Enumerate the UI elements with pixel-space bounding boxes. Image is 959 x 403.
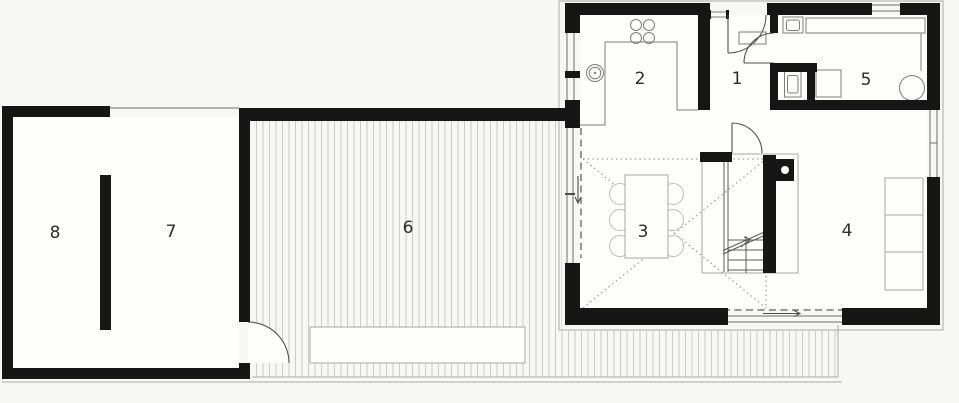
house-south-wall	[565, 308, 728, 325]
room-label-7: 7	[166, 222, 177, 242]
dining-furniture	[610, 175, 684, 258]
sofa-seat	[885, 178, 923, 215]
room-label-8: 8	[50, 223, 61, 243]
house-east-wall	[927, 3, 940, 110]
sofa-seat	[885, 252, 923, 290]
room-label-4: 4	[842, 221, 853, 241]
garage-east-wall	[239, 108, 250, 322]
floor-plan-drawing: 1 2 3 4 5 6 7 8	[0, 0, 959, 403]
dining-table	[625, 175, 668, 258]
fireplace-flue-icon	[781, 166, 789, 174]
room-label-6: 6	[403, 218, 414, 238]
garage-floor	[13, 117, 239, 368]
room-label-1: 1	[732, 69, 743, 89]
house-north-wall	[767, 3, 872, 15]
house-north-wall	[565, 3, 710, 15]
kitchen-hall-wall	[698, 3, 710, 110]
garage-west-wall	[2, 106, 13, 379]
garage-partition-wall	[100, 175, 111, 330]
garage-east-wall	[239, 363, 250, 379]
deck-north-wall	[250, 108, 565, 121]
room-label-5: 5	[861, 70, 872, 90]
stair-top-wall	[702, 154, 728, 160]
bathroom-south-wall	[770, 100, 934, 110]
window-mullion	[565, 71, 580, 78]
house-floor	[580, 15, 927, 308]
floor-plan-canvas: 1 2 3 4 5 6 7 8	[0, 0, 959, 403]
room-label-3: 3	[638, 222, 649, 242]
sink-drain-dot	[594, 72, 596, 74]
stair-side-wall	[763, 155, 776, 273]
sofa-seat	[885, 215, 923, 252]
bathroom-wall	[770, 15, 778, 33]
garage-south-wall	[2, 368, 248, 379]
living-furniture	[885, 178, 923, 290]
house-east-wall	[927, 177, 940, 325]
house-west-wall	[565, 3, 580, 33]
garage-north-wall	[2, 106, 110, 117]
deck-bench	[310, 327, 525, 363]
house-west-wall	[565, 100, 580, 128]
house-south-wall	[842, 308, 940, 325]
room-label-2: 2	[635, 69, 646, 89]
